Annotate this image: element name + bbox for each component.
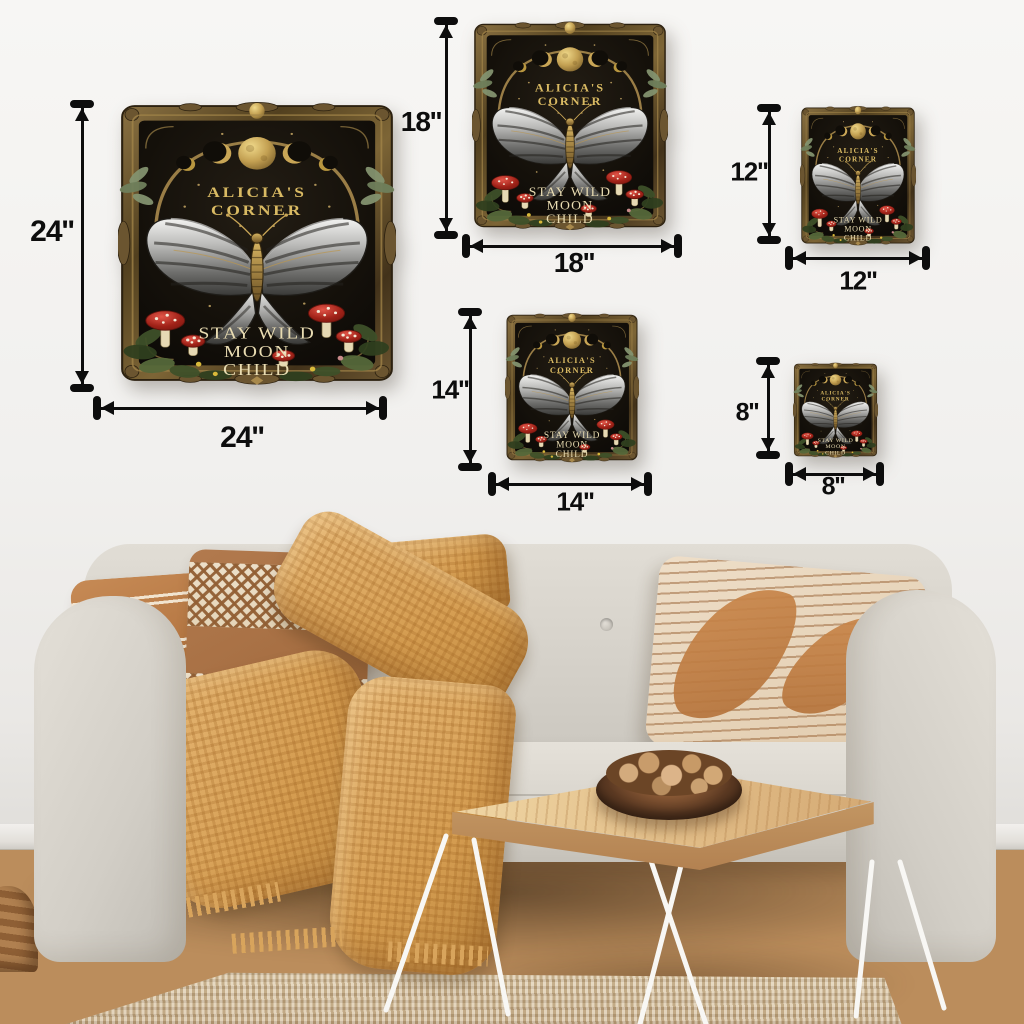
quote-text-line1: STAY WILD (529, 185, 612, 199)
brand-text-line1: ALICIA'S (207, 183, 306, 201)
quote-text-line2: MOON (547, 198, 594, 212)
arrow-head-down (75, 371, 89, 384)
width-dimension-label: 8'' (822, 473, 845, 502)
arrow-head-down (762, 223, 776, 236)
quote-text-line2: MOON (844, 225, 872, 234)
height-dimension-label: 24'' (30, 215, 74, 249)
arrow-head-up (75, 108, 89, 121)
bowl-of-nuts (606, 750, 732, 796)
height-dimension-label: 18'' (401, 106, 441, 138)
sign-artwork: ALICIA'S CORNER (505, 312, 639, 463)
arrow-end-cap (379, 396, 387, 420)
height-arrow-line (768, 111, 771, 237)
arrow-head-down (439, 218, 453, 231)
height-dimension-label: 8'' (736, 399, 759, 428)
arrow-head-left (793, 467, 806, 481)
finial-ornament (568, 314, 575, 322)
arrow-end-cap (674, 234, 682, 258)
arrow-head-up (761, 365, 775, 378)
arrow-head-up (762, 112, 776, 125)
finial-ornament (565, 22, 576, 34)
height-dimension-label: 12'' (730, 157, 767, 188)
arrow-head-left (793, 251, 806, 265)
arrow-head-left (470, 239, 483, 253)
product-size-chart-scene: ALICIA'S CORNER (0, 0, 1024, 1024)
width-dimension-label: 24'' (220, 421, 264, 455)
height-dimension-label: 14'' (431, 375, 468, 406)
wall-sign-18in: ALICIA'S CORNER (472, 20, 668, 231)
brand-text-line2: CORNER (821, 397, 849, 403)
arrow-head-right (863, 467, 876, 481)
wall-sign-24in: ALICIA'S CORNER (118, 100, 396, 386)
quote-text-line2: MOON (556, 440, 588, 450)
sign-artwork: ALICIA'S CORNER (472, 20, 668, 231)
quote-text-line1: STAY WILD (198, 324, 315, 343)
sign-artwork: ALICIA'S CORNER (793, 362, 878, 458)
brand-text-line2: CORNER (211, 201, 303, 219)
arrow-head-up (439, 25, 453, 38)
finial-ornament (249, 103, 264, 119)
brand-text-line1: ALICIA'S (548, 356, 596, 365)
height-arrow-line (81, 107, 84, 385)
wall-sign-8in: ALICIA'S CORNER (793, 362, 878, 458)
sign-artwork: ALICIA'S CORNER (118, 100, 396, 386)
arrow-head-right (366, 401, 379, 415)
width-dimension-label: 14'' (556, 487, 593, 518)
brand-text-line2: CORNER (538, 95, 603, 107)
brand-text-line2: CORNER (839, 155, 877, 164)
height-arrow-line (469, 315, 472, 464)
arrow-end-cap (458, 463, 482, 471)
wall-sign-14in: ALICIA'S CORNER (505, 312, 639, 463)
arrow-end-cap (434, 231, 458, 239)
arrow-head-left (101, 401, 114, 415)
quote-text-line3: CHILD (556, 449, 589, 459)
quote-text-line1: STAY WILD (834, 216, 883, 225)
quote-text-line2: MOON (224, 342, 290, 361)
arrow-head-right (661, 239, 674, 253)
arrow-head-left (496, 477, 509, 491)
arrow-end-cap (644, 472, 652, 496)
height-arrow-line (445, 24, 448, 232)
width-arrow-line (792, 257, 923, 260)
sign-artwork: ALICIA'S CORNER (800, 105, 916, 246)
brand-text-line1: ALICIA'S (820, 391, 850, 397)
quote-text-line1: STAY WILD (818, 438, 854, 444)
arrow-head-right (631, 477, 644, 491)
arrow-end-cap (757, 236, 781, 244)
quote-text-line3: CHILD (546, 212, 594, 226)
width-dimension-label: 18'' (554, 247, 594, 279)
arrow-end-cap (922, 246, 930, 270)
arrow-head-up (463, 316, 477, 329)
wall-sign-12in: ALICIA'S CORNER (800, 105, 916, 246)
arrow-head-right (909, 251, 922, 265)
width-arrow-line (495, 483, 645, 486)
width-arrow-line (100, 407, 380, 410)
quote-text-line3: CHILD (223, 360, 291, 379)
arrow-end-cap (756, 451, 780, 459)
quote-text-line2: MOON (825, 444, 845, 450)
finial-ornament (855, 106, 861, 114)
quote-text-line1: STAY WILD (544, 430, 600, 440)
width-dimension-label: 12'' (839, 266, 876, 297)
arrow-head-down (463, 450, 477, 463)
arrow-head-down (761, 438, 775, 451)
finial-ornament (833, 363, 838, 368)
brand-text-line2: CORNER (550, 366, 594, 375)
arrow-end-cap (876, 462, 884, 486)
brand-text-line1: ALICIA'S (535, 82, 605, 94)
arrow-end-cap (70, 384, 94, 392)
brand-text-line1: ALICIA'S (837, 146, 878, 155)
